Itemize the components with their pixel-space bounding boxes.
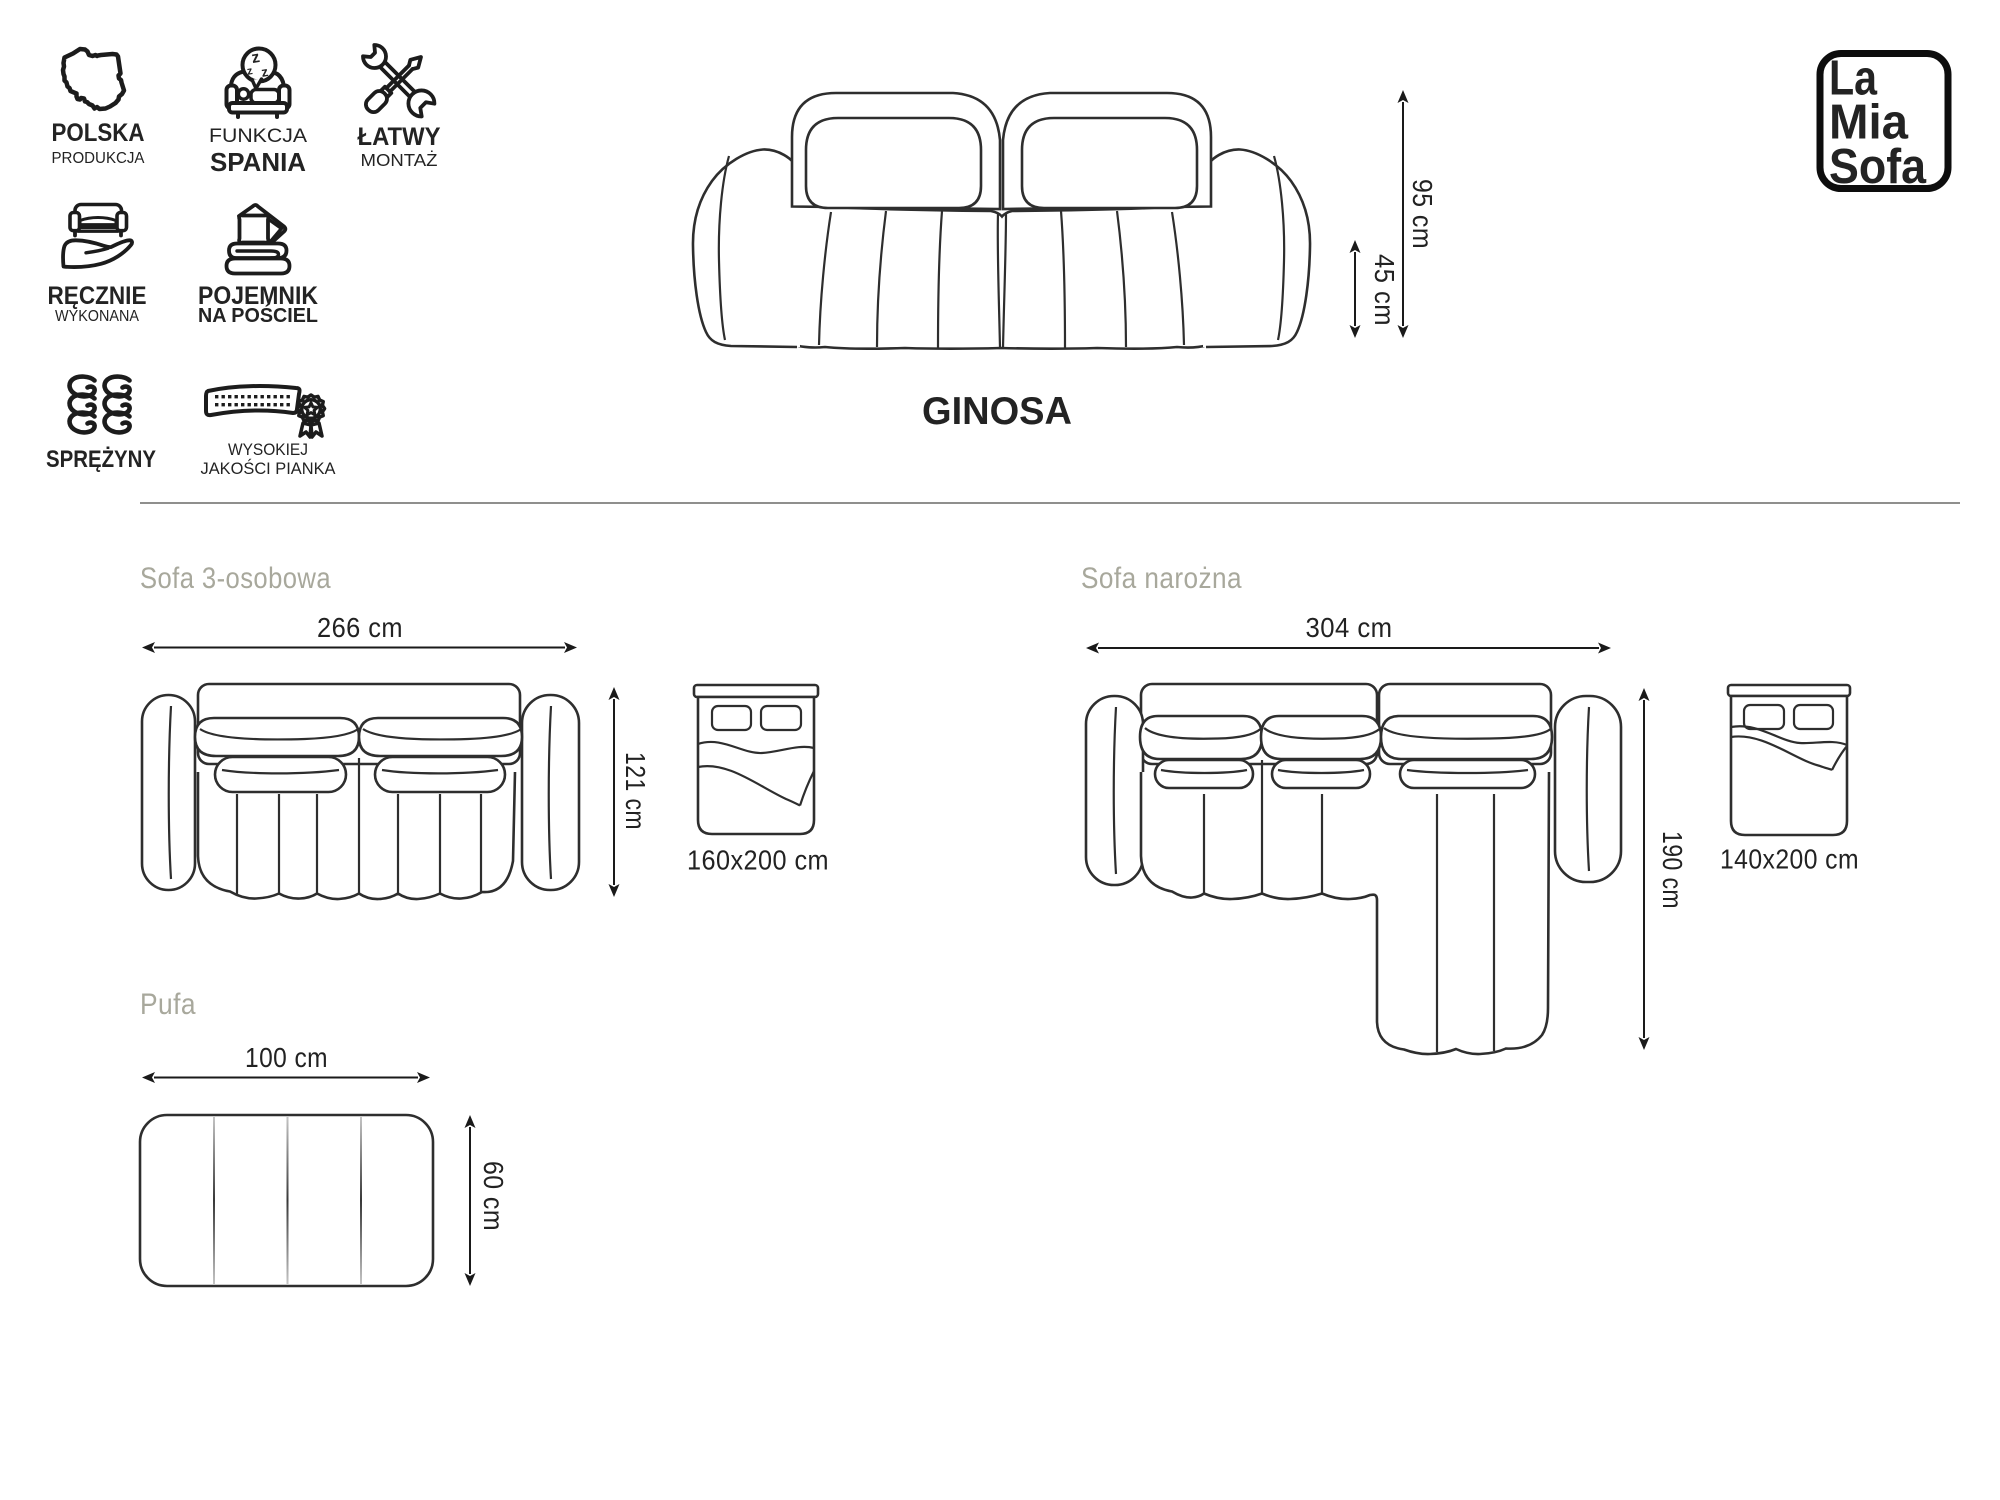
svg-text:100 cm: 100 cm (245, 1042, 328, 1073)
svg-text:304 cm: 304 cm (1306, 612, 1393, 643)
svg-text:SPRĘŻYNY: SPRĘŻYNY (46, 446, 156, 473)
svg-text:Pufa: Pufa (140, 988, 196, 1021)
svg-text:ŁATWY: ŁATWY (358, 123, 441, 151)
svg-text:60 cm: 60 cm (478, 1161, 509, 1231)
svg-text:FUNKCJA: FUNKCJA (209, 125, 307, 147)
svg-text:Sofa 3-osobowa: Sofa 3-osobowa (140, 562, 331, 595)
svg-text:121 cm: 121 cm (620, 752, 651, 830)
svg-text:160x200 cm: 160x200 cm (687, 845, 829, 876)
svg-text:RĘCZNIE: RĘCZNIE (48, 282, 147, 310)
svg-text:JAKOŚCI PIANKA: JAKOŚCI PIANKA (201, 459, 336, 478)
svg-text:95 cm: 95 cm (1407, 179, 1438, 249)
svg-text:266 cm: 266 cm (317, 612, 403, 643)
svg-text:190 cm: 190 cm (1657, 831, 1688, 909)
svg-text:GINOSA: GINOSA (922, 390, 1072, 433)
svg-text:SPANIA: SPANIA (210, 147, 306, 177)
svg-text:WYKONANA: WYKONANA (55, 308, 140, 325)
svg-text:WYSOKIEJ: WYSOKIEJ (228, 441, 308, 459)
svg-text:Sofa narożna: Sofa narożna (1081, 562, 1242, 595)
svg-text:140x200 cm: 140x200 cm (1720, 844, 1859, 875)
svg-text:NA POŚCIEL: NA POŚCIEL (198, 303, 318, 327)
svg-text:Sofa: Sofa (1829, 140, 1927, 194)
svg-text:POLSKA: POLSKA (52, 119, 145, 147)
svg-text:PRODUKCJA: PRODUKCJA (52, 150, 145, 167)
svg-text:45 cm: 45 cm (1369, 254, 1400, 326)
svg-text:MONTAŻ: MONTAŻ (361, 150, 438, 170)
